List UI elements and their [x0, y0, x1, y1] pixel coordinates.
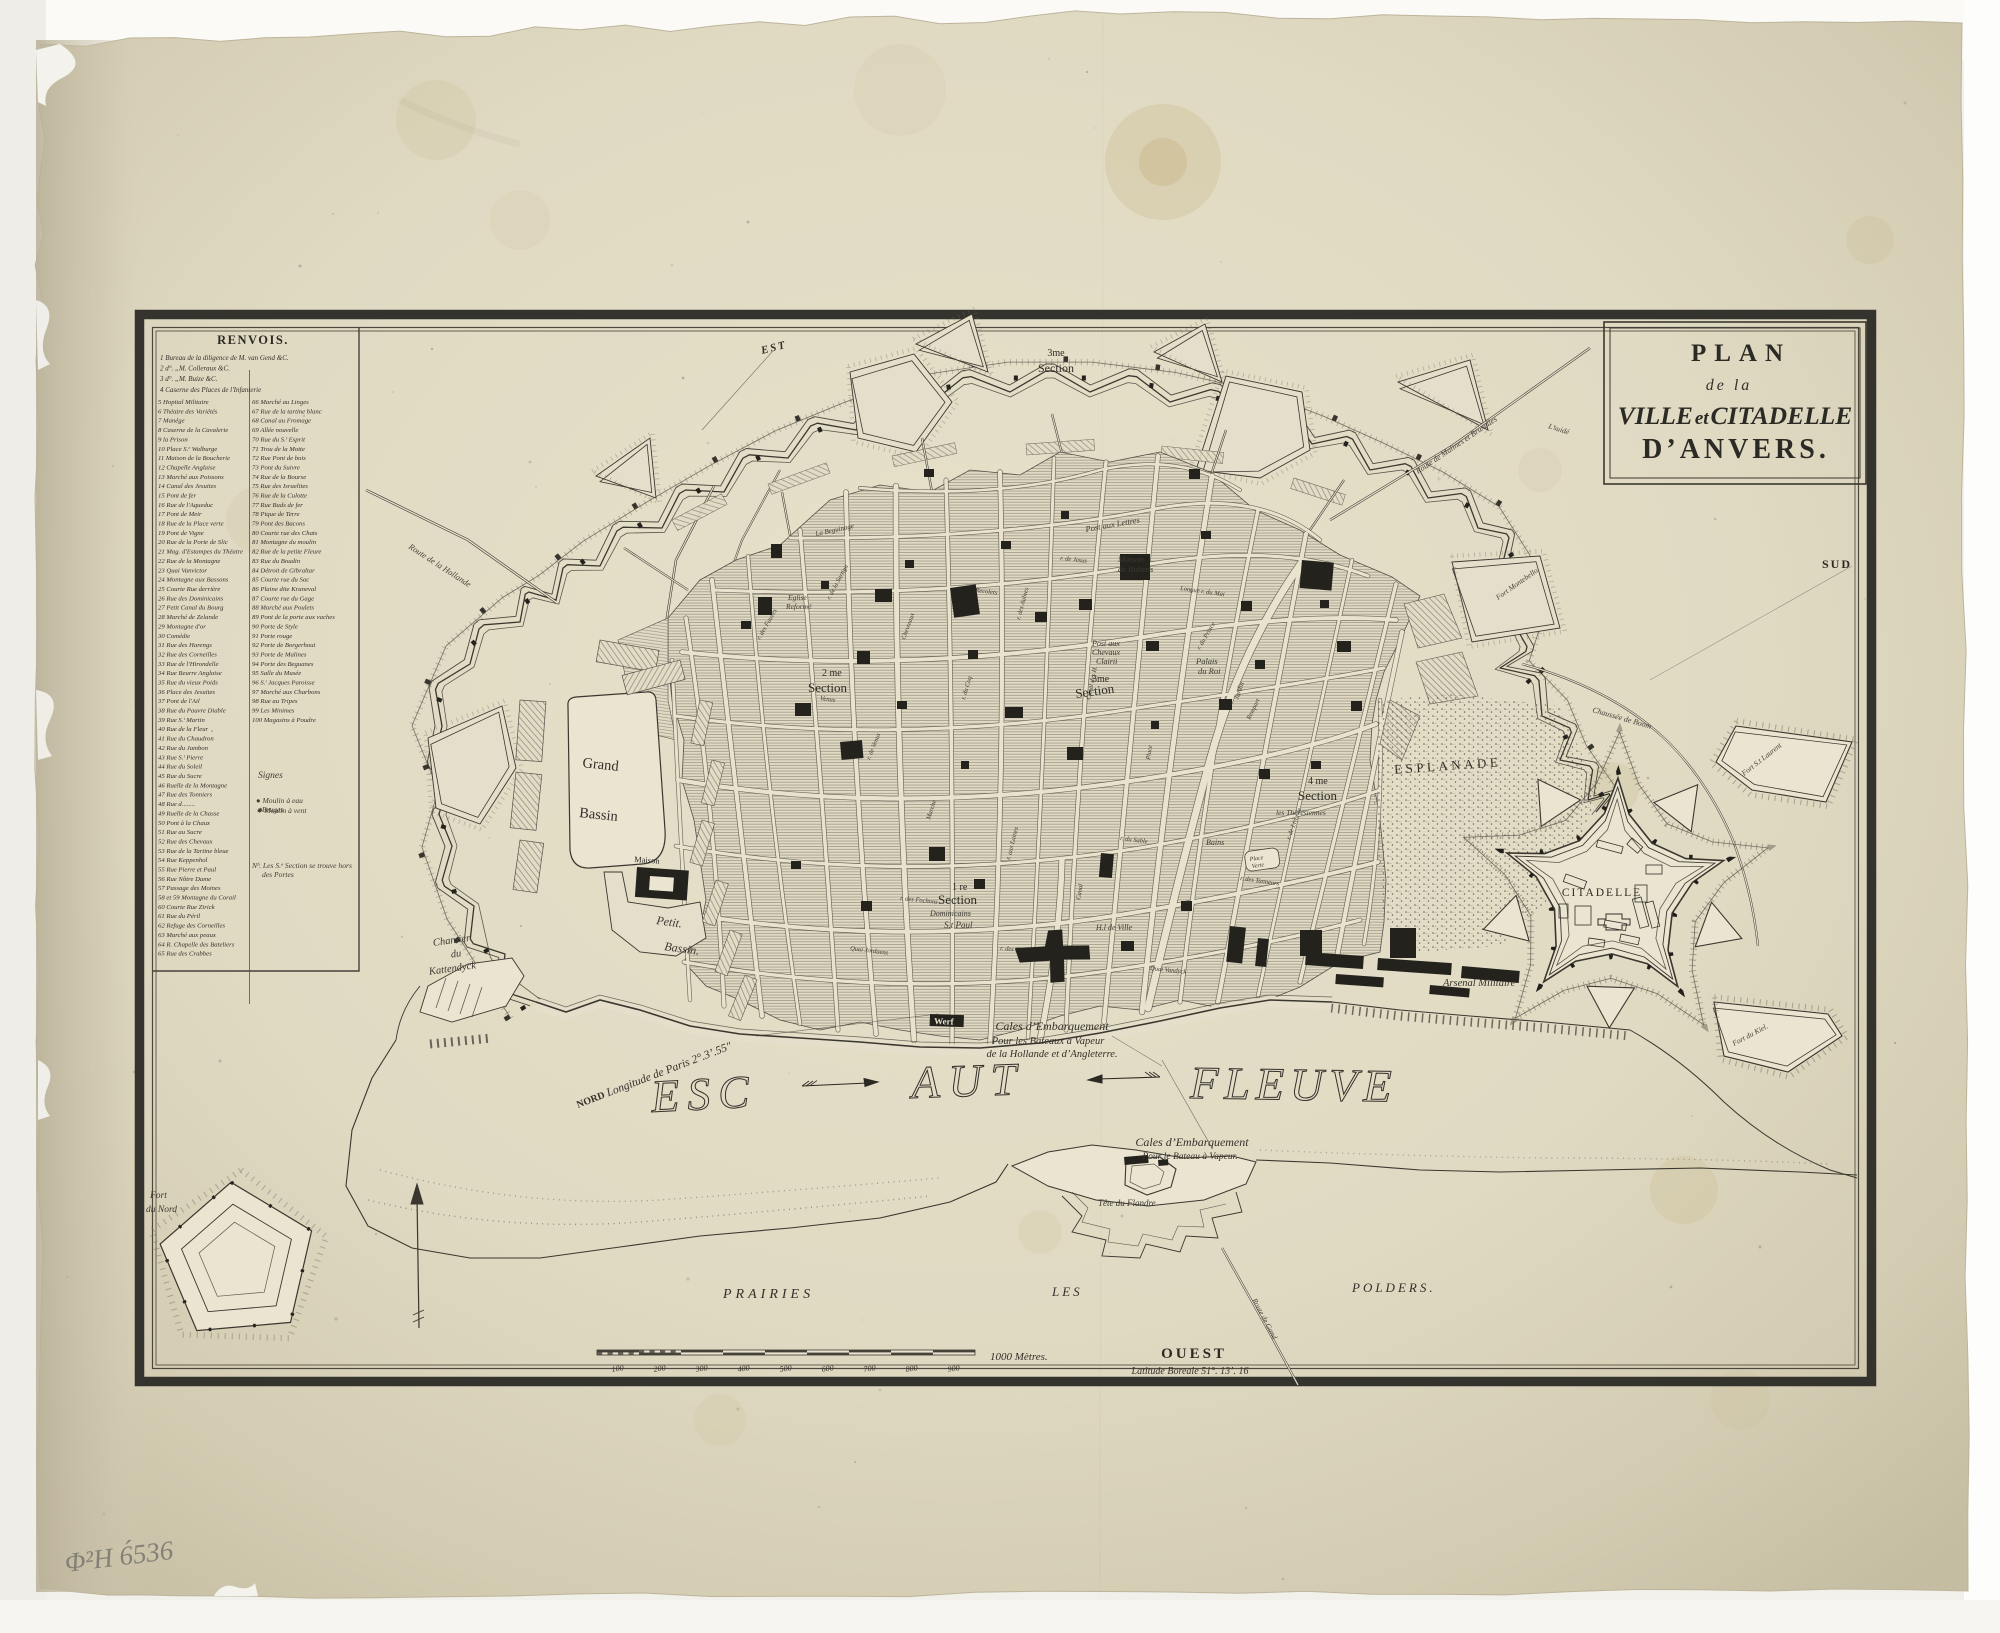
svg-text:66 Marché au Linges: 66 Marché au Linges [252, 399, 309, 406]
svg-text:21 Mag. d'Estampes du Théatre: 21 Mag. d'Estampes du Théatre [158, 549, 243, 556]
svg-text:SUD: SUD [1822, 557, 1852, 571]
svg-text:5 Hopital Militaire: 5 Hopital Militaire [158, 399, 209, 406]
svg-text:40 Rue de la Fleur: 40 Rue de la Fleur [158, 726, 209, 733]
svg-text:Fort: Fort [149, 1191, 167, 1201]
svg-text:52 Rue des Chevaux: 52 Rue des Chevaux [158, 839, 212, 846]
svg-text:54 Rue Keppenhol: 54 Rue Keppenhol [158, 857, 208, 864]
svg-text:51 Rue au Sucre: 51 Rue au Sucre [158, 829, 202, 836]
svg-text:Maison: Maison [634, 854, 661, 866]
svg-text:13 Marché aux Poissons: 13 Marché aux Poissons [158, 474, 224, 481]
svg-text:79 Pont des Bacons: 79 Pont des Bacons [252, 521, 305, 528]
svg-text:Tête du Flandre: Tête du Flandre [1098, 1198, 1156, 1208]
svg-text:70 Rue du S.ᵗ Esprit: 70 Rue du S.ᵗ Esprit [252, 436, 305, 443]
svg-text:Eglise: Eglise [787, 593, 807, 602]
svg-text:99 Les Minimes: 99 Les Minimes [252, 708, 295, 715]
svg-text:8 Caserne de la Cavalerie: 8 Caserne de la Cavalerie [158, 427, 228, 434]
svg-text:78 Pique de Terre: 78 Pique de Terre [252, 511, 300, 518]
svg-text:33 Rue de l'Hirondelle: 33 Rue de l'Hirondelle [157, 661, 218, 668]
svg-text:65 Rue des Crabbes: 65 Rue des Crabbes [158, 951, 212, 958]
svg-text:69 Allée nouvelle: 69 Allée nouvelle [252, 427, 298, 434]
svg-text:89 Pont de la porte aux vaches: 89 Pont de la porte aux vaches [252, 614, 335, 621]
svg-text:23 Quai Vanvictor: 23 Quai Vanvictor [158, 567, 207, 574]
svg-text:80 Courte rue des Chats: 80 Courte rue des Chats [252, 530, 318, 537]
svg-text:de la: de la [1706, 377, 1753, 394]
svg-text:46 Ruelle de la Montagne: 46 Ruelle de la Montagne [158, 782, 227, 789]
svg-text:38 Rue du Pauvre Diable: 38 Rue du Pauvre Diable [157, 708, 226, 715]
svg-text:les Thérésiennes: les Thérésiennes [1276, 808, 1326, 817]
svg-text:Bains: Bains [1206, 838, 1224, 847]
svg-text:12 Chapelle Anglaise: 12 Chapelle Anglaise [158, 464, 215, 471]
svg-text:VILLEetCITADELLE: VILLEetCITADELLE [1618, 401, 1853, 430]
svg-text:41 Rue du Chaudron: 41 Rue du Chaudron [158, 736, 214, 743]
svg-text:3me: 3me [1047, 348, 1065, 359]
svg-text:96 S.ᵗ Jacques Paroisse: 96 S.ᵗ Jacques Paroisse [252, 680, 315, 687]
svg-text:35 Rue du vieux Poids: 35 Rue du vieux Poids [157, 680, 218, 687]
svg-text:45 Rue du Sucre: 45 Rue du Sucre [158, 773, 202, 780]
svg-text:63 Marché aux peaux: 63 Marché aux peaux [158, 932, 216, 939]
svg-text:64 R. Chapelle des Bateliers: 64 R. Chapelle des Bateliers [158, 941, 235, 948]
svg-text:du: du [450, 948, 462, 960]
svg-text:86 Plaine dite Kraneval: 86 Plaine dite Kraneval [252, 586, 316, 593]
svg-text:91 Porte rouge: 91 Porte rouge [252, 633, 292, 640]
svg-text:17 Pont de Meir: 17 Pont de Meir [158, 511, 202, 518]
svg-text:22 Rue de la Montagne: 22 Rue de la Montagne [158, 558, 220, 565]
svg-text:D’ANVERS.: D’ANVERS. [1642, 434, 1830, 465]
svg-text:37 Pont de l'Ail: 37 Pont de l'Ail [157, 698, 200, 705]
svg-text:du Nord: du Nord [146, 1205, 177, 1215]
svg-text:97 Marché aux Charbons: 97 Marché aux Charbons [252, 689, 321, 696]
svg-text:1000 Mètres.: 1000 Mètres. [990, 1351, 1048, 1363]
svg-text:800: 800 [905, 1363, 918, 1374]
svg-text:62 Refuge des Corneilles: 62 Refuge des Corneilles [158, 923, 225, 930]
svg-text:49 Ruelle de la Chasse: 49 Ruelle de la Chasse [158, 810, 219, 817]
svg-text:26 Rue des Dominicains: 26 Rue des Dominicains [158, 595, 224, 602]
svg-text:Werf: Werf [934, 1016, 955, 1027]
svg-text:LES: LES [1051, 1284, 1083, 1299]
svg-text:200: 200 [653, 1363, 666, 1374]
svg-text:81 Montagne du moulin: 81 Montagne du moulin [252, 539, 317, 546]
svg-text:● Moulin à eau: ● Moulin à eau [256, 796, 303, 805]
svg-text:500: 500 [779, 1363, 792, 1374]
svg-text:des Portes: des Portes [262, 870, 294, 879]
svg-text:20 Rue de la Porte de Slic: 20 Rue de la Porte de Slic [158, 539, 228, 546]
svg-text:400: 400 [737, 1363, 750, 1374]
svg-text:S.t Paul: S.t Paul [944, 920, 973, 930]
svg-text:6 Théatre des Variétés: 6 Théatre des Variétés [158, 408, 218, 415]
svg-text:34 Rue Beurre Anglaise: 34 Rue Beurre Anglaise [157, 670, 222, 677]
svg-text:Reformé: Reformé [785, 602, 812, 611]
svg-text:74 Rue de la Bourse: 74 Rue de la Bourse [252, 474, 306, 481]
svg-text:300: 300 [694, 1363, 708, 1374]
svg-text:44 Rue du Soleil: 44 Rue du Soleil [158, 764, 202, 771]
svg-text:Signes: Signes [258, 771, 283, 781]
svg-text:Palais: Palais [1195, 656, 1218, 666]
svg-text:Section: Section [1038, 361, 1074, 375]
svg-text:93 Porte de Malines: 93 Porte de Malines [252, 652, 307, 659]
svg-text:PLAN: PLAN [1691, 340, 1791, 367]
svg-text:100: 100 [611, 1363, 624, 1374]
svg-text:25 Courte Rue derrière: 25 Courte Rue derrière [158, 586, 220, 593]
svg-text:4 me: 4 me [1308, 776, 1328, 787]
svg-text:32 Rue des Corneilles: 32 Rue des Corneilles [157, 652, 217, 659]
svg-text:Latitude Boreale 51°. 13’. 16: Latitude Boreale 51°. 13’. 16 [1131, 1366, 1249, 1377]
svg-text:85 Courte rue du Sac: 85 Courte rue du Sac [252, 577, 309, 584]
svg-text:39 Rue S.ᵗ Martin: 39 Rue S.ᵗ Martin [157, 717, 205, 724]
svg-text:88 Marché aux Poulets: 88 Marché aux Poulets [252, 605, 314, 612]
svg-text:Cales d’Embarquement: Cales d’Embarquement [995, 1019, 1109, 1033]
svg-text:AUT: AUT [908, 1053, 1027, 1108]
svg-text:94 Porte des Beguanes: 94 Porte des Beguanes [252, 661, 314, 668]
svg-text:RENVOIS.: RENVOIS. [217, 333, 289, 347]
svg-text:47 Rue des Tonniers: 47 Rue des Tonniers [158, 792, 213, 799]
svg-text:7 Manége: 7 Manége [158, 418, 185, 425]
svg-text:Cales d’Embarquement: Cales d’Embarquement [1135, 1135, 1249, 1149]
svg-text:87 Courte rue du Gage: 87 Courte rue du Gage [252, 595, 314, 602]
svg-text:Section: Section [808, 680, 847, 695]
svg-text:98 Rue au Tripes: 98 Rue au Tripes [252, 698, 298, 705]
svg-text:28 Marché de Zelande: 28 Marché de Zelande [158, 614, 218, 621]
svg-text:53 Rue de la Tartine bleue: 53 Rue de la Tartine bleue [158, 848, 229, 855]
svg-text:77 Rue Buds de fer: 77 Rue Buds de fer [252, 502, 303, 509]
svg-text:55 Rue Pierre et Paul: 55 Rue Pierre et Paul [158, 867, 216, 874]
svg-text:73 Pont du Suivre: 73 Pont du Suivre [252, 464, 300, 471]
svg-text:3 d°. „M. Buiz: 3 d°. „M. Buize &C. [159, 375, 218, 383]
svg-text:82 Rue de la petite Fleure: 82 Rue de la petite Fleure [252, 549, 321, 556]
svg-text:700: 700 [863, 1363, 876, 1374]
svg-text:Chevaux: Chevaux [1092, 648, 1120, 657]
svg-text:90 Porte de Style: 90 Porte de Style [252, 623, 298, 630]
svg-text:61 Rue du Péril: 61 Rue du Péril [158, 913, 200, 920]
svg-text:14 Canal des Jesuites: 14 Canal des Jesuites [158, 483, 217, 490]
svg-text:67 Rue de la tartine blanc: 67 Rue de la tartine blanc [252, 408, 322, 415]
svg-text:Section: Section [1298, 788, 1337, 803]
svg-text:18 Rue de la Place verte: 18 Rue de la Place verte [158, 521, 224, 528]
svg-text:84 Détroit de Gibraltar: 84 Détroit de Gibraltar [252, 567, 315, 574]
svg-text:24 Montagne aux Bassons: 24 Montagne aux Bassons [158, 577, 229, 584]
svg-text:1 Bureau de la diligence de M.: 1 Bureau de la diligence de M. van Gend … [160, 354, 289, 362]
svg-text:100 Magasins à Poudre: 100 Magasins à Poudre [252, 717, 316, 724]
svg-text:Nᵇ. Les S.ᵉ Section se trouve: Nᵇ. Les S.ᵉ Section se trouve hors [251, 861, 352, 870]
svg-text:OUEST: OUEST [1161, 1346, 1227, 1362]
svg-text:27 Petit Canal du Bourg: 27 Petit Canal du Bourg [158, 605, 224, 612]
svg-text:29 Montagne d'or: 29 Montagne d'or [158, 623, 206, 630]
svg-text:H.l de Ville: H.l de Ville [1095, 923, 1133, 932]
svg-text:15 Pont de fer: 15 Pont de fer [158, 493, 196, 500]
svg-text:50 Pont à la Chaux: 50 Pont à la Chaux [158, 820, 210, 827]
svg-text:Bruges: Bruges [262, 805, 284, 814]
svg-text:Post aux: Post aux [1091, 639, 1120, 648]
svg-text:83 Rue du Boudin: 83 Rue du Boudin [252, 558, 301, 565]
svg-text:2 d°. „M. Coll: 2 d°. „M. Colleraux &C. [160, 365, 230, 373]
svg-text:75 Rue des Israelites: 75 Rue des Israelites [252, 483, 308, 490]
svg-text:48 Rue d........: 48 Rue d........ [158, 801, 195, 808]
svg-text:du Roi: du Roi [1198, 666, 1221, 676]
svg-text:Dominicains: Dominicains [929, 909, 971, 918]
svg-text:Clairii: Clairii [1096, 657, 1117, 666]
svg-text:Section: Section [938, 892, 977, 907]
svg-text:76 Rue de la Culotte: 76 Rue de la Culotte [252, 493, 307, 500]
svg-text:57 Passage des Moines: 57 Passage des Moines [158, 885, 221, 892]
svg-text:900: 900 [947, 1363, 960, 1374]
svg-text:4 Caserne des Places de l'Infa: 4 Caserne des Places de l'Infanterie [160, 386, 261, 394]
svg-text:19 Pont de Vigne: 19 Pont de Vigne [158, 530, 204, 537]
svg-text:56 Rue Nôtre Dame: 56 Rue Nôtre Dame [158, 876, 211, 883]
svg-text:92 Porte de Borgerhout: 92 Porte de Borgerhout [252, 642, 315, 649]
svg-text:FLEUVE: FLEUVE [1189, 1057, 1398, 1112]
svg-text:42 Rue du Jambon: 42 Rue du Jambon [158, 745, 209, 752]
svg-text:PRAIRIES: PRAIRIES [722, 1287, 814, 1302]
svg-text:de la Hollande et d’Angleterre: de la Hollande et d’Angleterre. [986, 1049, 1117, 1060]
svg-text:43 Rue S.ᵗ Pierre: 43 Rue S.ᵗ Pierre [158, 754, 203, 761]
svg-text:71 Trou de la Motte: 71 Trou de la Motte [252, 446, 305, 453]
svg-text:2 me: 2 me [822, 668, 842, 679]
svg-text:58 et 59 Montagne du Corail: 58 et 59 Montagne du Corail [158, 895, 236, 902]
svg-text:Pour le Bateau à Vapeur.: Pour le Bateau à Vapeur. [1141, 1152, 1237, 1162]
svg-text:POLDERS.: POLDERS. [1351, 1280, 1436, 1295]
svg-text:36 Place des Jesuites: 36 Place des Jesuites [157, 689, 215, 696]
svg-text:Arsenal Militaire: Arsenal Militaire [1442, 978, 1516, 989]
svg-text:95 Salle du Musée: 95 Salle du Musée [252, 670, 301, 677]
svg-text:600: 600 [821, 1363, 834, 1374]
svg-text:de Rubens: de Rubens [1118, 564, 1154, 574]
svg-text:11 Maison de la Boucherie: 11 Maison de la Boucherie [158, 455, 230, 462]
svg-text:10 Place S.ᵉ Walburge: 10 Place S.ᵉ Walburge [158, 446, 217, 453]
svg-text:Maison: Maison [1117, 554, 1144, 564]
svg-text:68 Canal au Fromage: 68 Canal au Fromage [252, 418, 311, 425]
svg-text:31 Rue des Harengs: 31 Rue des Harengs [157, 642, 212, 649]
svg-text:16 Rue de l'Aqueduc: 16 Rue de l'Aqueduc [158, 502, 213, 509]
svg-text:60 Courte Rue Zirick: 60 Courte Rue Zirick [158, 904, 216, 911]
svg-text:Pour les Bateaux a Vapeur: Pour les Bateaux a Vapeur [991, 1036, 1105, 1047]
svg-text:CITADELLE: CITADELLE [1562, 887, 1642, 899]
svg-text:72 Rue Pont de bois: 72 Rue Pont de bois [252, 455, 306, 462]
svg-text:9 la Prison: 9 la Prison [158, 436, 188, 443]
svg-text:30 Comédie: 30 Comédie [157, 633, 190, 640]
